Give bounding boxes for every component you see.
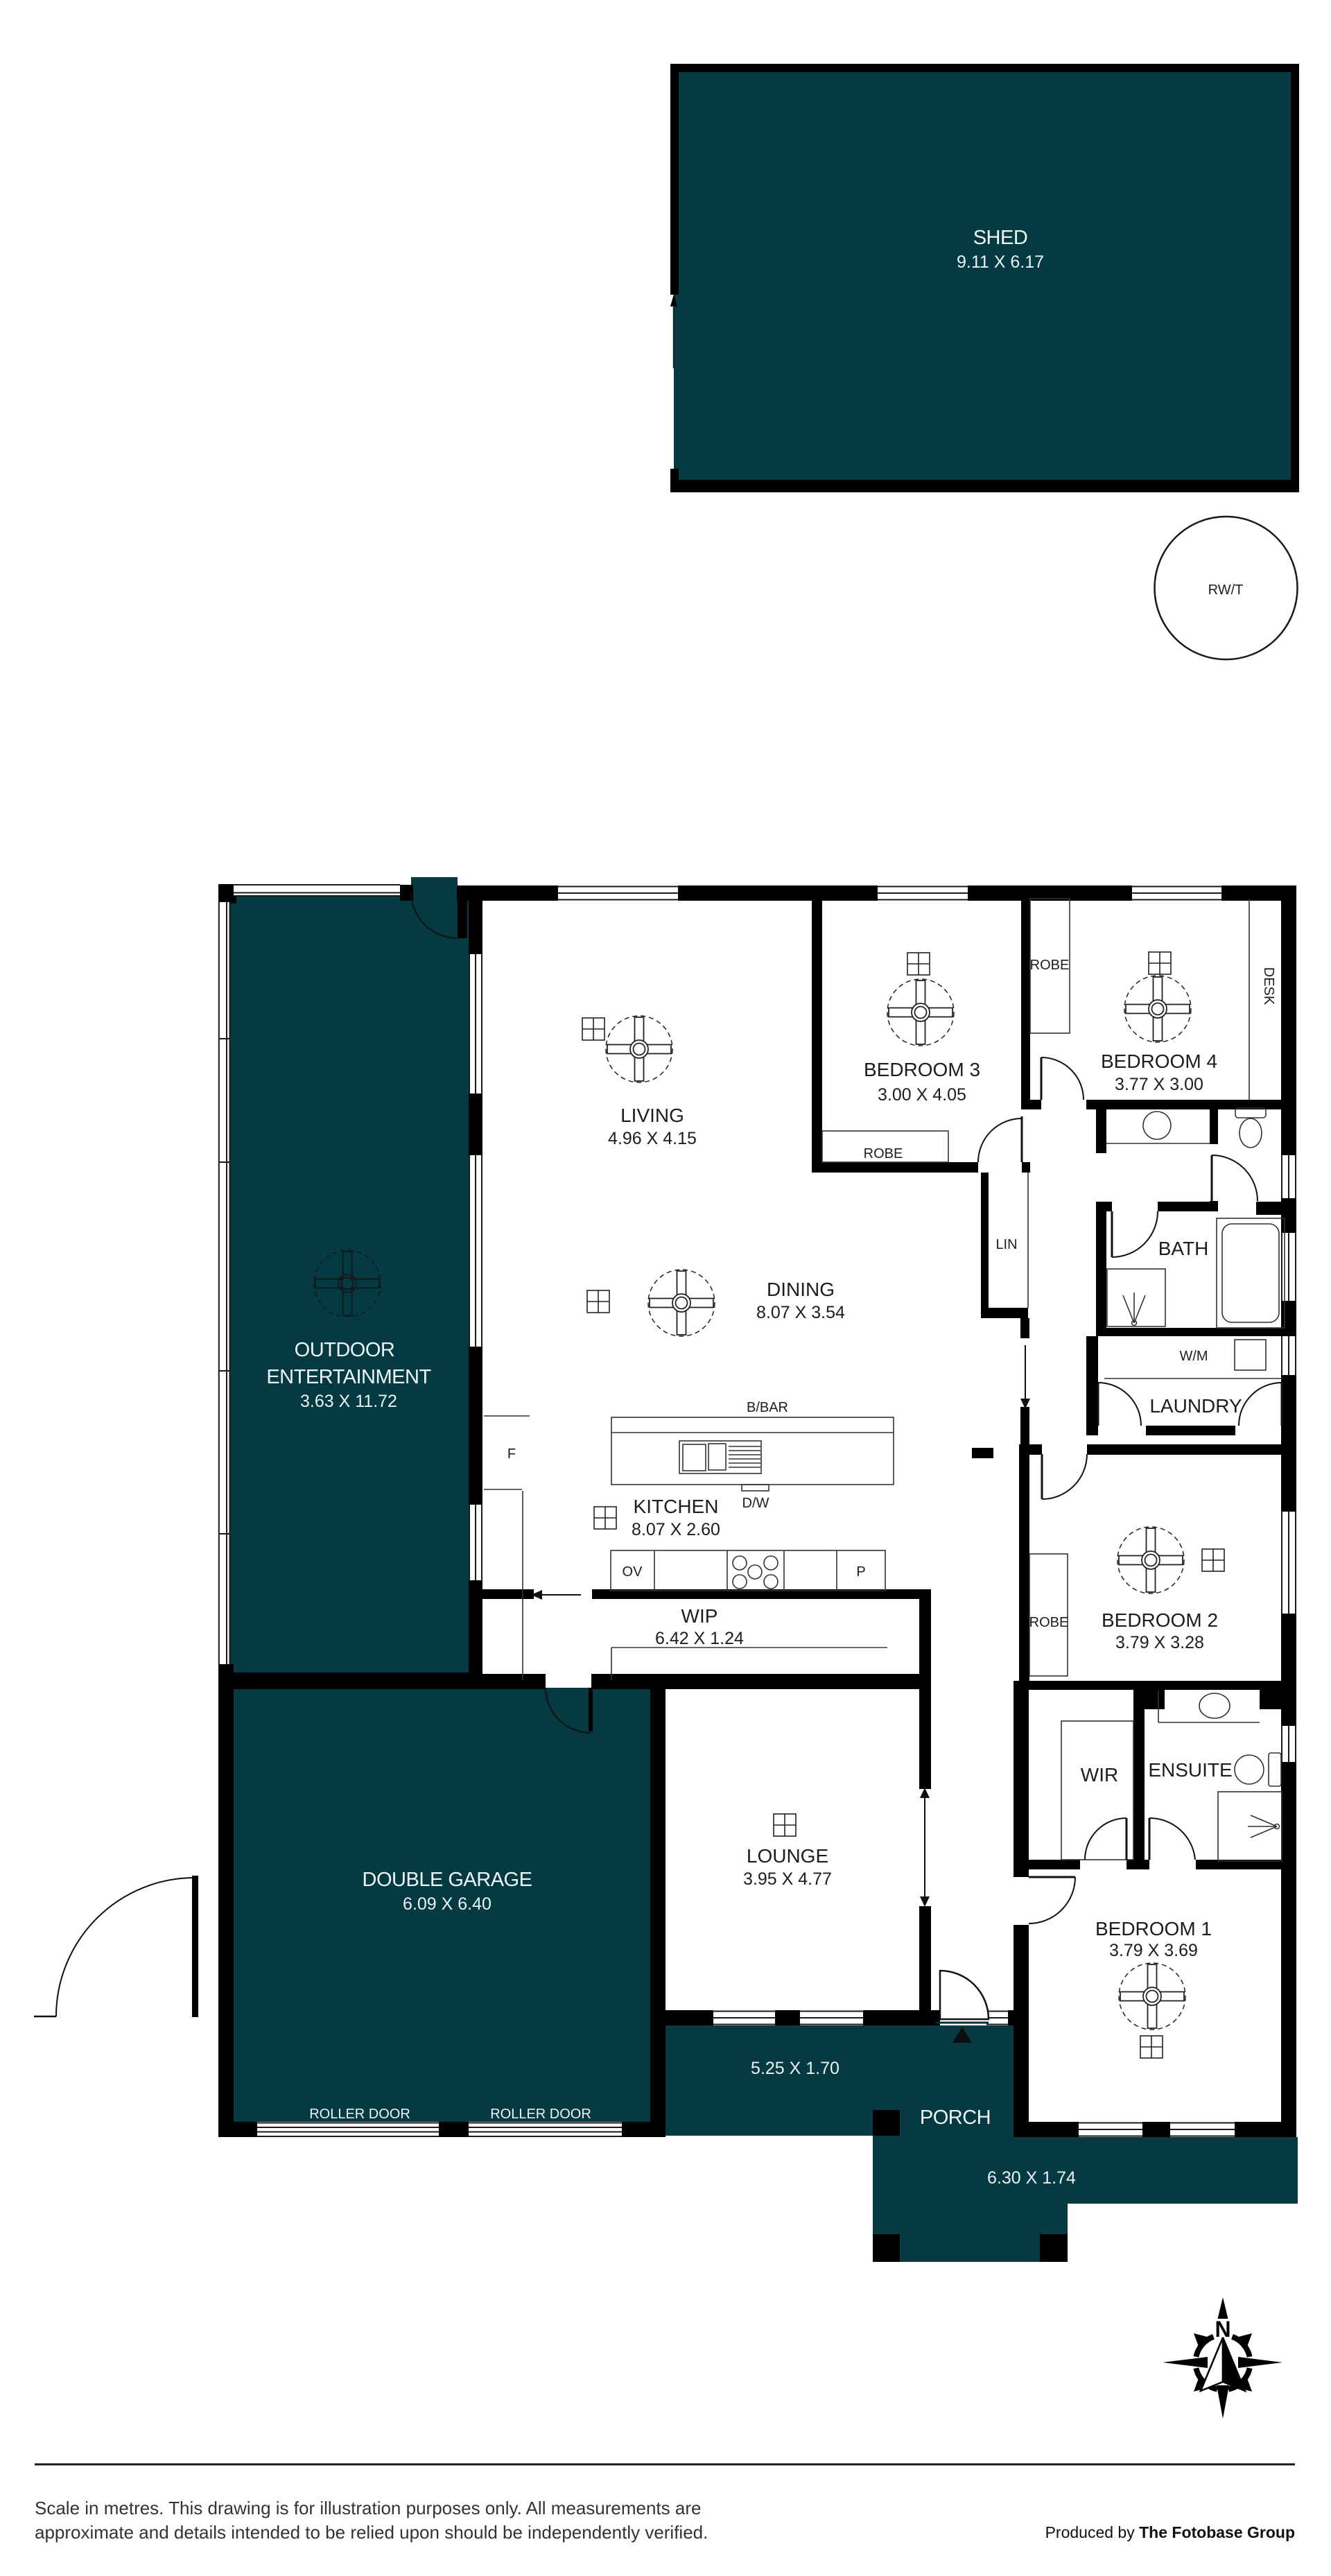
svg-text:Produced by The Fotobase Group: Produced by The Fotobase Group: [1045, 2523, 1295, 2541]
svg-text:OV: OV: [623, 1564, 643, 1580]
svg-text:ROBE: ROBE: [1029, 1615, 1069, 1630]
svg-text:P: P: [856, 1564, 865, 1580]
svg-text:B/BAR: B/BAR: [747, 1400, 788, 1415]
svg-text:WIR: WIR: [1081, 1764, 1118, 1786]
svg-text:F: F: [507, 1446, 516, 1462]
svg-text:6.42 X 1.24: 6.42 X 1.24: [655, 1629, 744, 1648]
svg-text:LOUNGE: LOUNGE: [747, 1845, 828, 1867]
svg-text:8.07 X 2.60: 8.07 X 2.60: [632, 1520, 720, 1539]
svg-text:ROBE: ROBE: [1030, 958, 1070, 973]
svg-text:DESK: DESK: [1261, 967, 1276, 1005]
svg-text:N: N: [1215, 2317, 1230, 2342]
svg-text:ENTERTAINMENT: ENTERTAINMENT: [266, 1366, 431, 1388]
svg-text:OUTDOOR: OUTDOOR: [295, 1339, 395, 1361]
svg-text:DOUBLE GARAGE: DOUBLE GARAGE: [363, 1869, 532, 1891]
svg-text:D/W: D/W: [742, 1496, 769, 1511]
svg-text:ROLLER DOOR: ROLLER DOOR: [309, 2107, 410, 2122]
svg-text:9.11 X 6.17: 9.11 X 6.17: [957, 252, 1044, 272]
svg-text:4.96 X 4.15: 4.96 X 4.15: [608, 1129, 697, 1148]
svg-text:LIN: LIN: [995, 1237, 1017, 1252]
svg-text:ENSUITE: ENSUITE: [1148, 1759, 1232, 1781]
svg-text:PORCH: PORCH: [920, 2107, 991, 2129]
svg-text:LAUNDRY: LAUNDRY: [1149, 1395, 1242, 1417]
svg-text:6.30 X 1.74: 6.30 X 1.74: [987, 2168, 1076, 2188]
svg-text:BATH: BATH: [1158, 1238, 1209, 1259]
svg-text:SHED: SHED: [973, 227, 1028, 249]
svg-text:approximate and details intend: approximate and details intended to be r…: [35, 2522, 708, 2543]
svg-text:BEDROOM 1: BEDROOM 1: [1095, 1918, 1212, 1939]
svg-text:3.77 X 3.00: 3.77 X 3.00: [1115, 1075, 1203, 1094]
svg-text:3.00 X 4.05: 3.00 X 4.05: [878, 1085, 966, 1105]
svg-text:3.79 X 3.28: 3.79 X 3.28: [1115, 1633, 1204, 1652]
svg-text:LIVING: LIVING: [620, 1105, 684, 1126]
svg-text:3.79 X 3.69: 3.79 X 3.69: [1109, 1941, 1198, 1960]
svg-text:3.95 X 4.77: 3.95 X 4.77: [743, 1869, 832, 1889]
svg-text:BEDROOM 3: BEDROOM 3: [864, 1059, 980, 1080]
svg-text:W/M: W/M: [1179, 1349, 1208, 1364]
svg-text:6.09 X 6.40: 6.09 X 6.40: [403, 1894, 491, 1914]
svg-text:KITCHEN: KITCHEN: [634, 1496, 719, 1517]
svg-text:ROLLER DOOR: ROLLER DOOR: [490, 2107, 591, 2122]
svg-text:RW/T: RW/T: [1208, 582, 1244, 598]
svg-text:WIP: WIP: [681, 1605, 718, 1627]
svg-text:ROBE: ROBE: [864, 1146, 903, 1161]
svg-text:5.25 X 1.70: 5.25 X 1.70: [751, 2059, 840, 2078]
svg-text:3.63 X 11.72: 3.63 X 11.72: [300, 1392, 397, 1411]
svg-text:BEDROOM 4: BEDROOM 4: [1101, 1051, 1217, 1072]
svg-text:DINING: DINING: [767, 1279, 835, 1300]
svg-text:8.07 X 3.54: 8.07 X 3.54: [756, 1303, 845, 1322]
svg-text:BEDROOM 2: BEDROOM 2: [1102, 1609, 1218, 1631]
svg-text:Scale in metres. This drawing: Scale in metres. This drawing is for ill…: [35, 2498, 701, 2518]
